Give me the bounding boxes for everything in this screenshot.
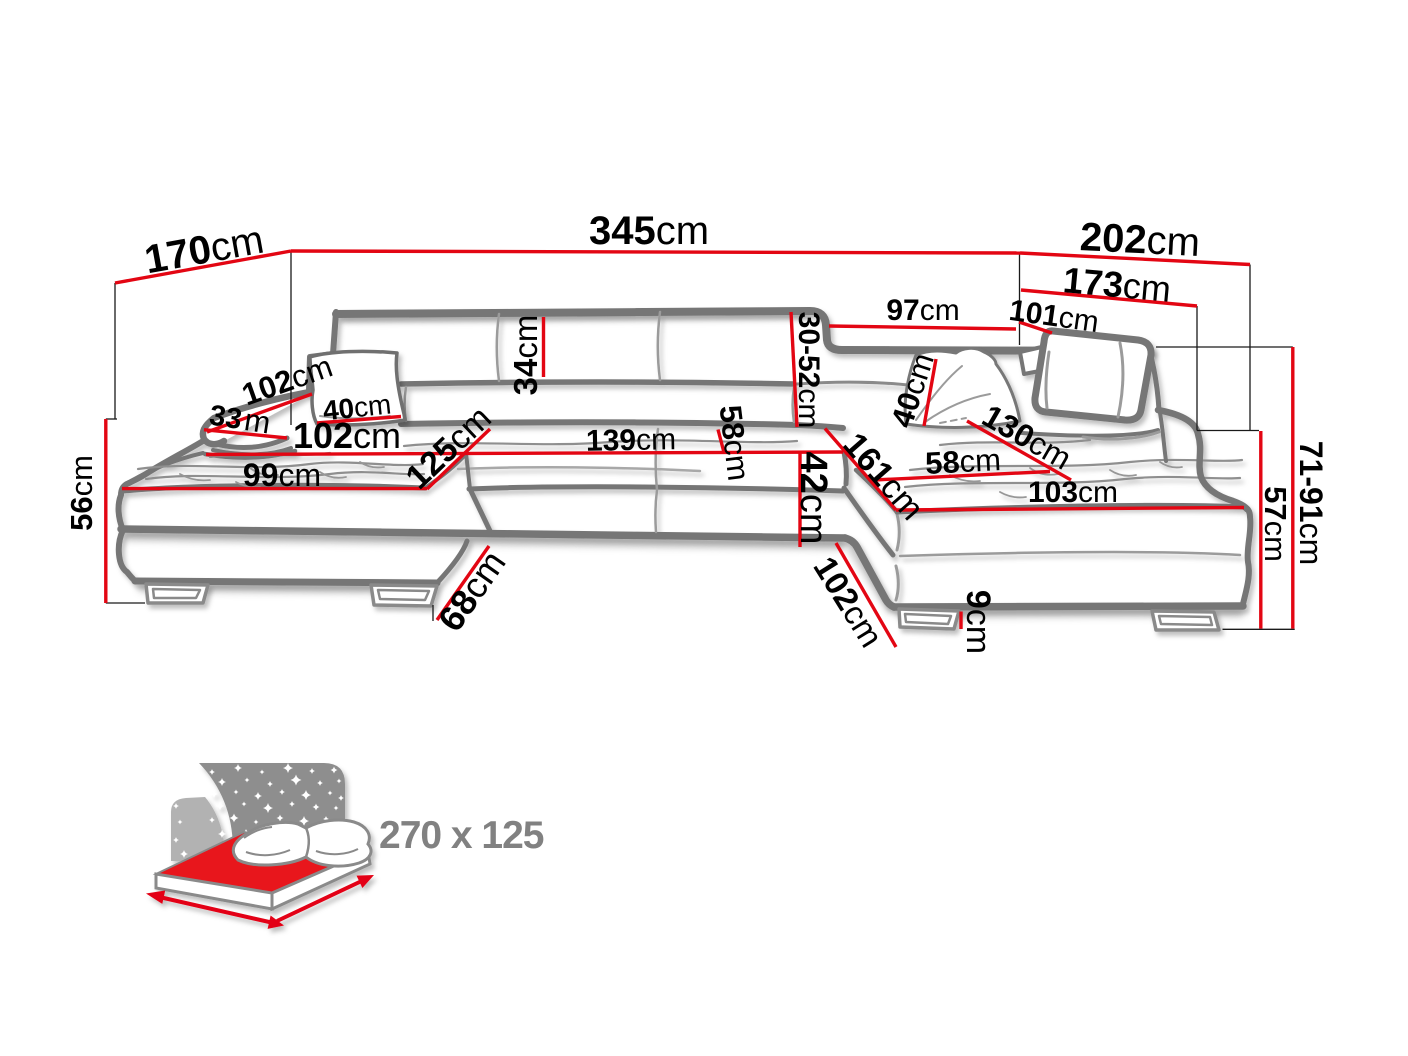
svg-text:102cm: 102cm [293, 415, 401, 456]
svg-text:139cm: 139cm [586, 423, 677, 458]
svg-text:103cm: 103cm [1028, 476, 1118, 509]
svg-text:9cm: 9cm [959, 590, 997, 654]
svg-text:99cm: 99cm [243, 457, 321, 493]
svg-text:30-52cm: 30-52cm [792, 312, 825, 429]
svg-text:97cm: 97cm [886, 294, 959, 327]
svg-text:58cm: 58cm [924, 442, 1002, 481]
svg-text:71-91cm: 71-91cm [1293, 441, 1329, 566]
svg-text:34cm: 34cm [507, 315, 544, 396]
svg-text:57cm: 57cm [1258, 486, 1293, 562]
svg-text:56cm: 56cm [64, 455, 99, 531]
svg-text:202cm: 202cm [1079, 215, 1201, 265]
svg-text:270 x 125: 270 x 125 [379, 814, 544, 857]
svg-text:345cm: 345cm [589, 209, 709, 253]
svg-text:42cm: 42cm [792, 452, 834, 545]
